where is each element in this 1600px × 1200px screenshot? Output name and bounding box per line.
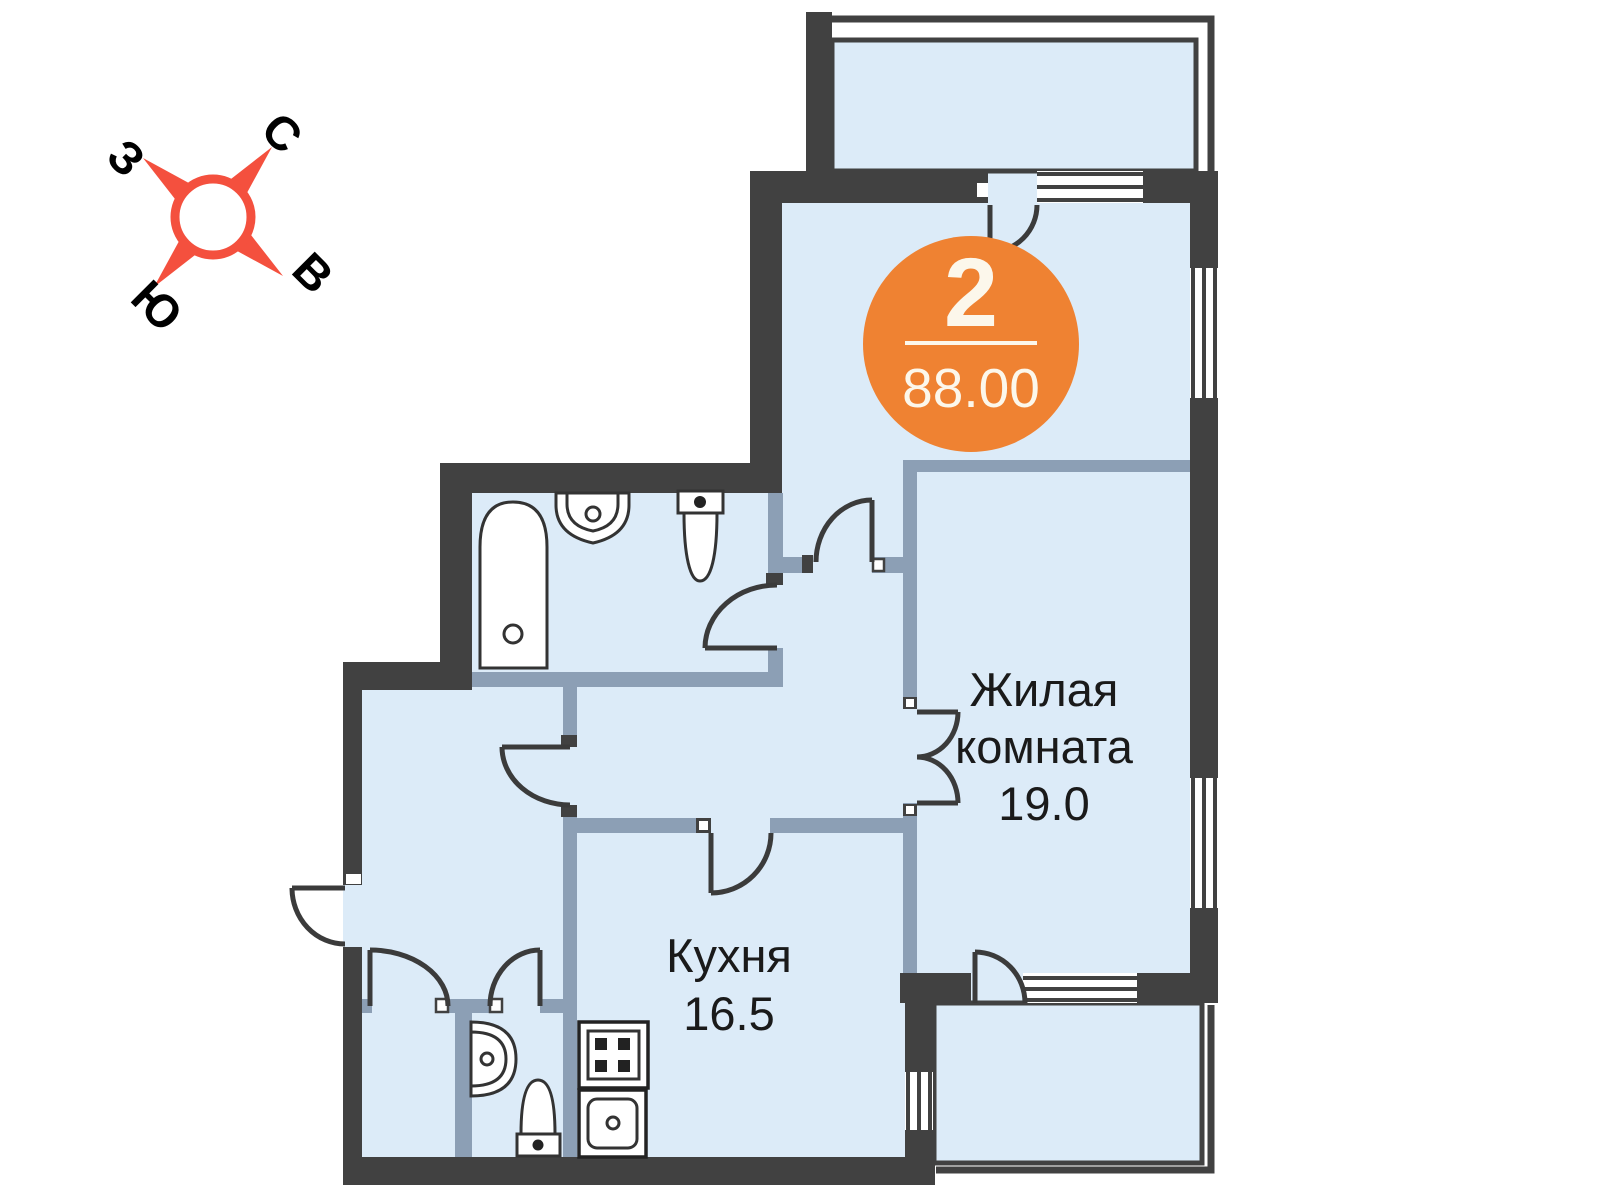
wall-ext-kitchen-right-a (905, 1003, 933, 1072)
compass-label-south: Ю (121, 270, 193, 342)
floorplan-page: Жилая комната 19.0 Кухня 16.5 2 88.00 С … (0, 0, 1600, 1200)
living-room-area: 19.0 (998, 777, 1089, 830)
wall-ext-top-room-left (750, 171, 782, 493)
wall-kitchen-top-right (770, 818, 903, 833)
compass-hub (175, 179, 251, 255)
wall-bathroom-right-lower (768, 648, 783, 687)
window-living-bottom (1023, 975, 1137, 1003)
wall-ext-kitchen-right-b (905, 1130, 933, 1157)
window-kitchen-balcony (905, 1072, 933, 1130)
balcony-top (806, 12, 1211, 171)
kitchen-sink-icon (579, 1090, 646, 1157)
entrance-door-gap (343, 885, 362, 947)
wall-kitchen-top-left (577, 818, 700, 833)
wall-ext-entry-top (343, 662, 472, 690)
stop-double-door-bottom-inner (906, 806, 914, 814)
wall-ext-bottom (343, 1157, 935, 1185)
stop-entrance (346, 874, 361, 884)
balcony-bottom (934, 1003, 1211, 1170)
window-top-room-right (1190, 268, 1218, 398)
wall-entry-bottom-b (448, 999, 490, 1013)
window-top-room (1037, 171, 1143, 203)
stop-corridor-right (873, 559, 884, 571)
balcony-top-floor (832, 40, 1196, 171)
wall-ext-bathroom-left (440, 463, 472, 673)
wall-hall-divider-lower (563, 805, 577, 1157)
wall-living-left-upper (903, 460, 917, 708)
badge-total-area: 88.00 (902, 357, 1040, 419)
living-room-label-line2: комната (955, 720, 1134, 773)
badge-rooms-count: 2 (944, 238, 998, 347)
wall-ext-bathroom-top (440, 463, 750, 493)
wall-ext-right-b (1190, 398, 1218, 778)
stop-double-door-top-inner (906, 699, 914, 707)
stop-balcony-top (977, 183, 988, 197)
wall-ext-living-bottom-a (900, 973, 971, 1003)
compass-label-north: С (252, 102, 313, 163)
compass-label-east: В (283, 242, 344, 303)
compass-label-west: З (97, 128, 155, 186)
kitchen-label: Кухня (666, 929, 792, 982)
stop-corridor-left (802, 555, 813, 573)
bathtub-icon (480, 502, 547, 668)
floorplan-canvas: Жилая комната 19.0 Кухня 16.5 2 88.00 С … (0, 0, 1600, 1200)
living-room-label-line1: Жилая (970, 663, 1119, 716)
area-badge: 2 88.00 (863, 236, 1079, 452)
balcony-door-gap-bottom (971, 973, 1023, 1003)
door-entrance (292, 888, 345, 944)
wall-ext-right-a (1190, 171, 1218, 268)
wall-entry-bottom-c (540, 999, 577, 1013)
wall-living-left-lower (903, 803, 917, 973)
stove-icon (579, 1022, 648, 1088)
stop-kitchen-door-inner (699, 821, 708, 830)
window-living-right (1190, 778, 1218, 908)
wall-wc-divider (455, 1013, 472, 1157)
wall-ext-living-bottom-b (1137, 973, 1218, 1003)
wall-bathroom-bottom (472, 672, 783, 687)
kitchen-area: 16.5 (683, 987, 774, 1040)
wall-ext-left-a (343, 662, 362, 885)
compass-rose: С В Ю З (97, 102, 344, 342)
balcony-door-gap-top (988, 171, 1037, 203)
balcony-bottom-floor (934, 1003, 1202, 1163)
wall-ext-left-b (343, 947, 362, 1185)
balcony-top-side-wall (806, 12, 832, 171)
wall-living-top (903, 460, 1190, 472)
wall-ext-top-a (750, 171, 988, 203)
